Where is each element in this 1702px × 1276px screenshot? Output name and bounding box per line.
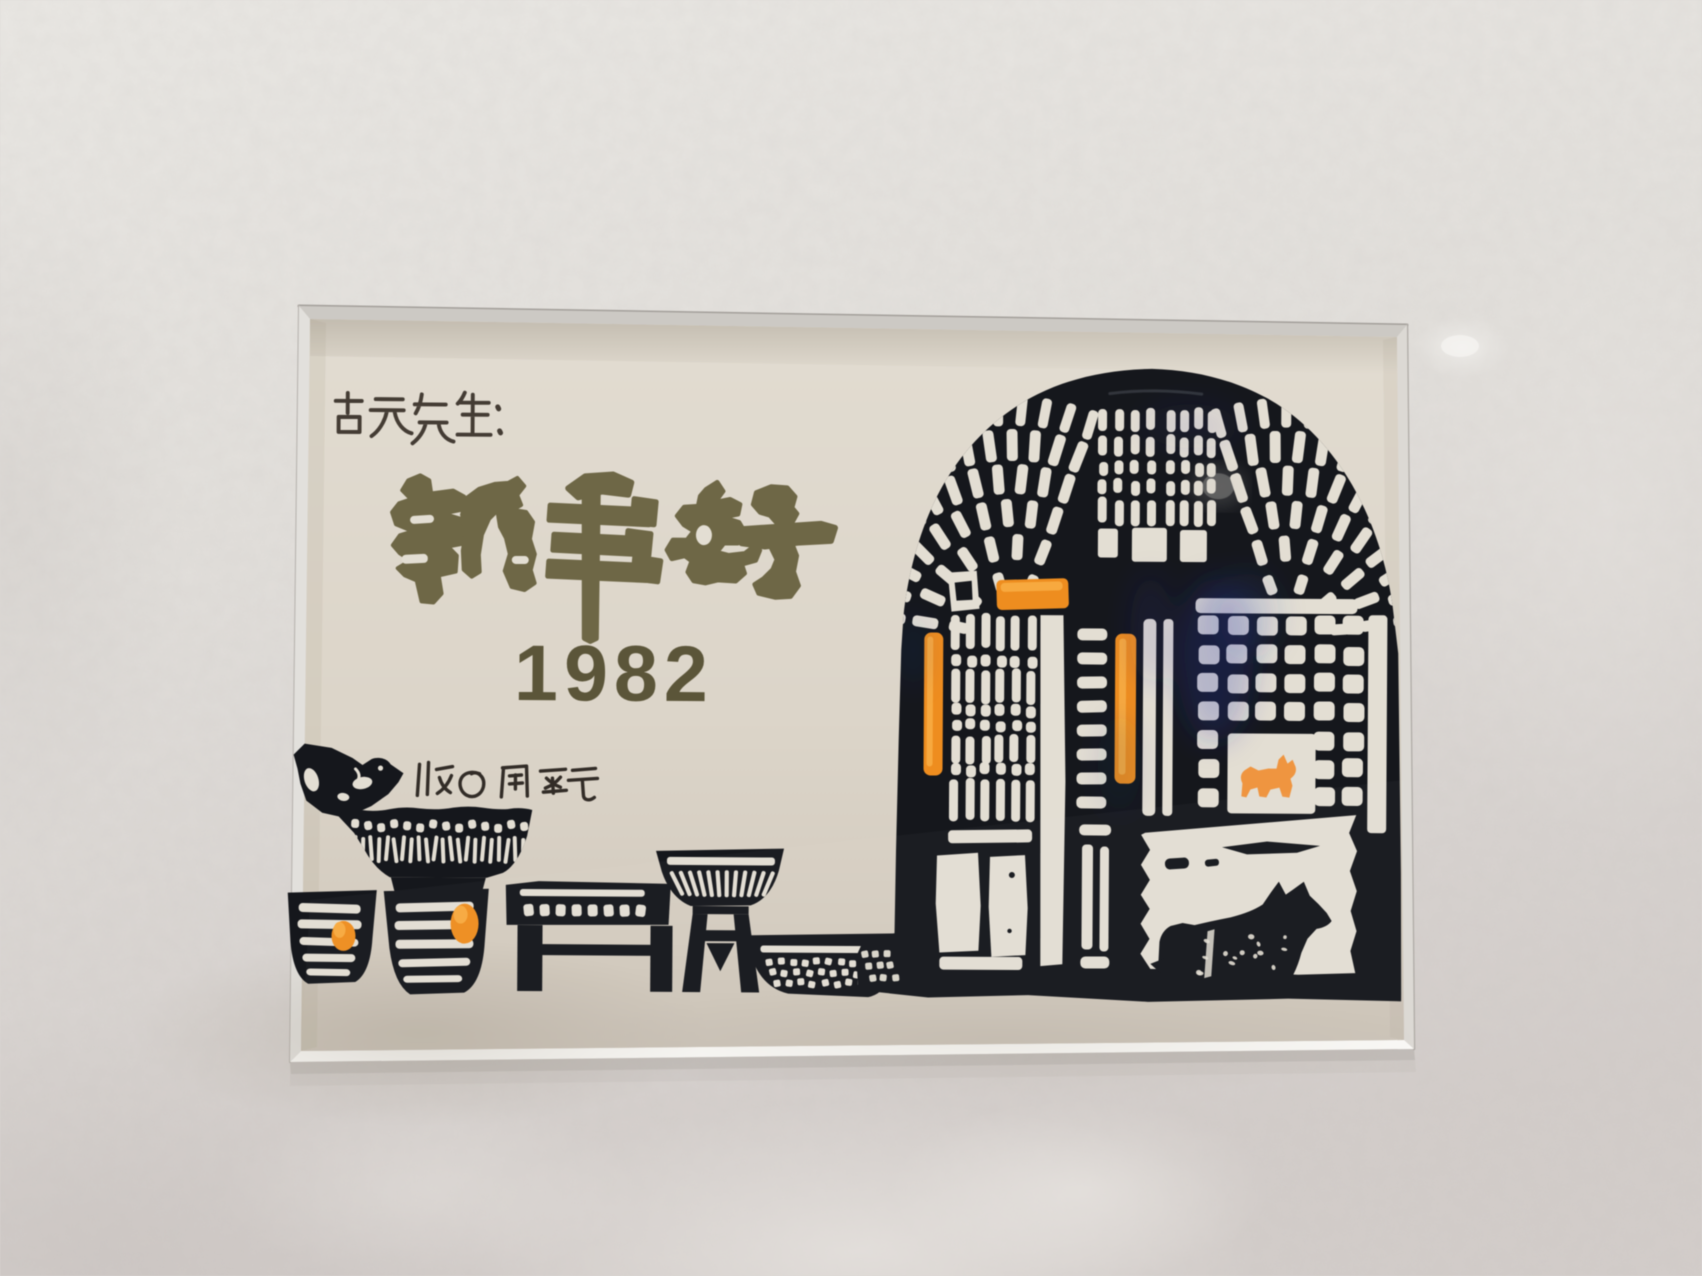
svg-text:1982: 1982 [514,628,714,718]
